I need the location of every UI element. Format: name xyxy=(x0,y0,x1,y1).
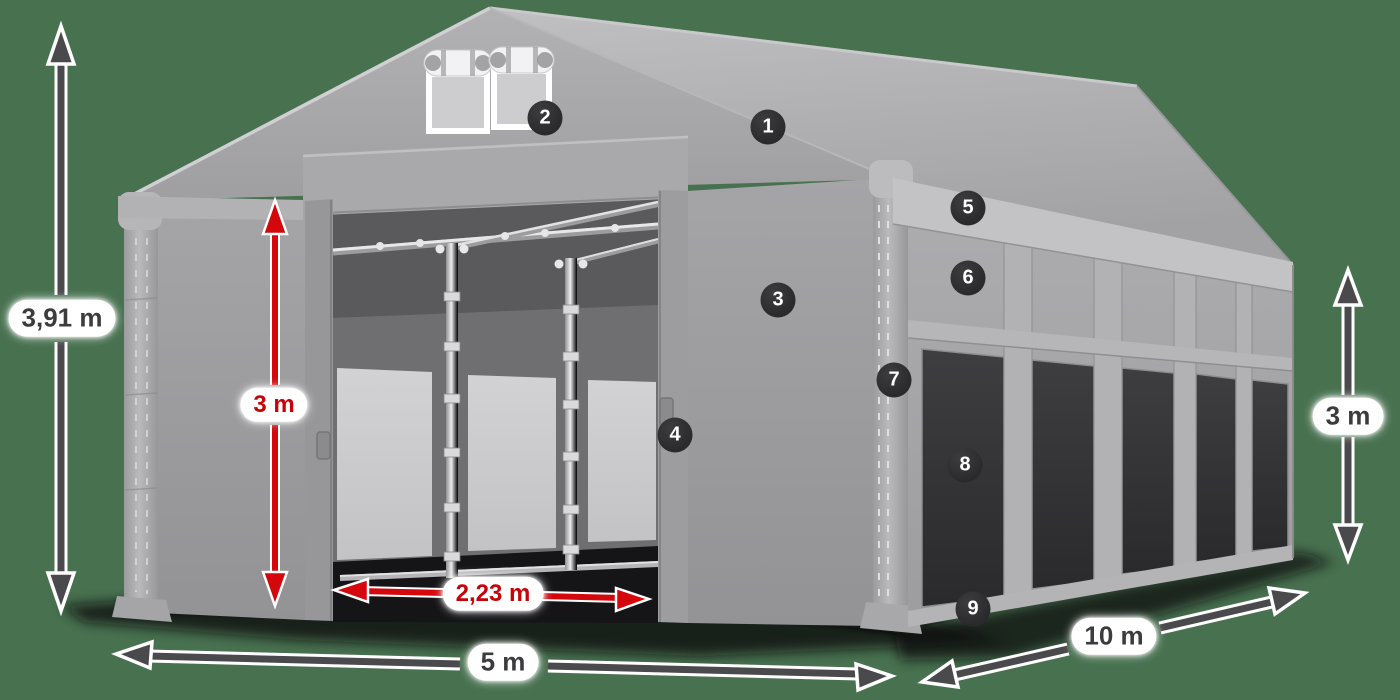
feature-marker-7[interactable]: 7 xyxy=(877,363,912,398)
feature-marker-9[interactable]: 9 xyxy=(956,592,991,627)
door-width-label: 2,23 m xyxy=(443,577,544,611)
side-length-label: 10 m xyxy=(1071,618,1156,655)
feature-marker-2[interactable]: 2 xyxy=(528,101,563,136)
feature-marker-8[interactable]: 8 xyxy=(948,448,983,483)
feature-marker-1[interactable]: 1 xyxy=(751,110,786,145)
door-height-label: 3 m xyxy=(240,388,307,422)
front-width-label: 5 m xyxy=(468,644,539,681)
tent-interior xyxy=(333,192,658,623)
side-height-label: 3 m xyxy=(1313,398,1384,435)
feature-marker-5[interactable]: 5 xyxy=(951,191,986,226)
feature-marker-6[interactable]: 6 xyxy=(951,261,986,296)
tent-illustration xyxy=(0,0,1400,700)
front-wall-right-panel xyxy=(688,179,873,626)
feature-marker-4[interactable]: 4 xyxy=(658,418,693,453)
door-handle-left xyxy=(317,432,330,459)
door-post-left xyxy=(305,199,333,621)
gable-vent-window-left xyxy=(424,50,492,131)
feature-marker-3[interactable]: 3 xyxy=(761,283,796,318)
total-height-label: 3,91 m xyxy=(9,300,116,337)
tent-dimension-diagram: 3,91 m 3 m 2,23 m 5 m 10 m 3 m 1 2 3 4 5… xyxy=(0,0,1400,700)
